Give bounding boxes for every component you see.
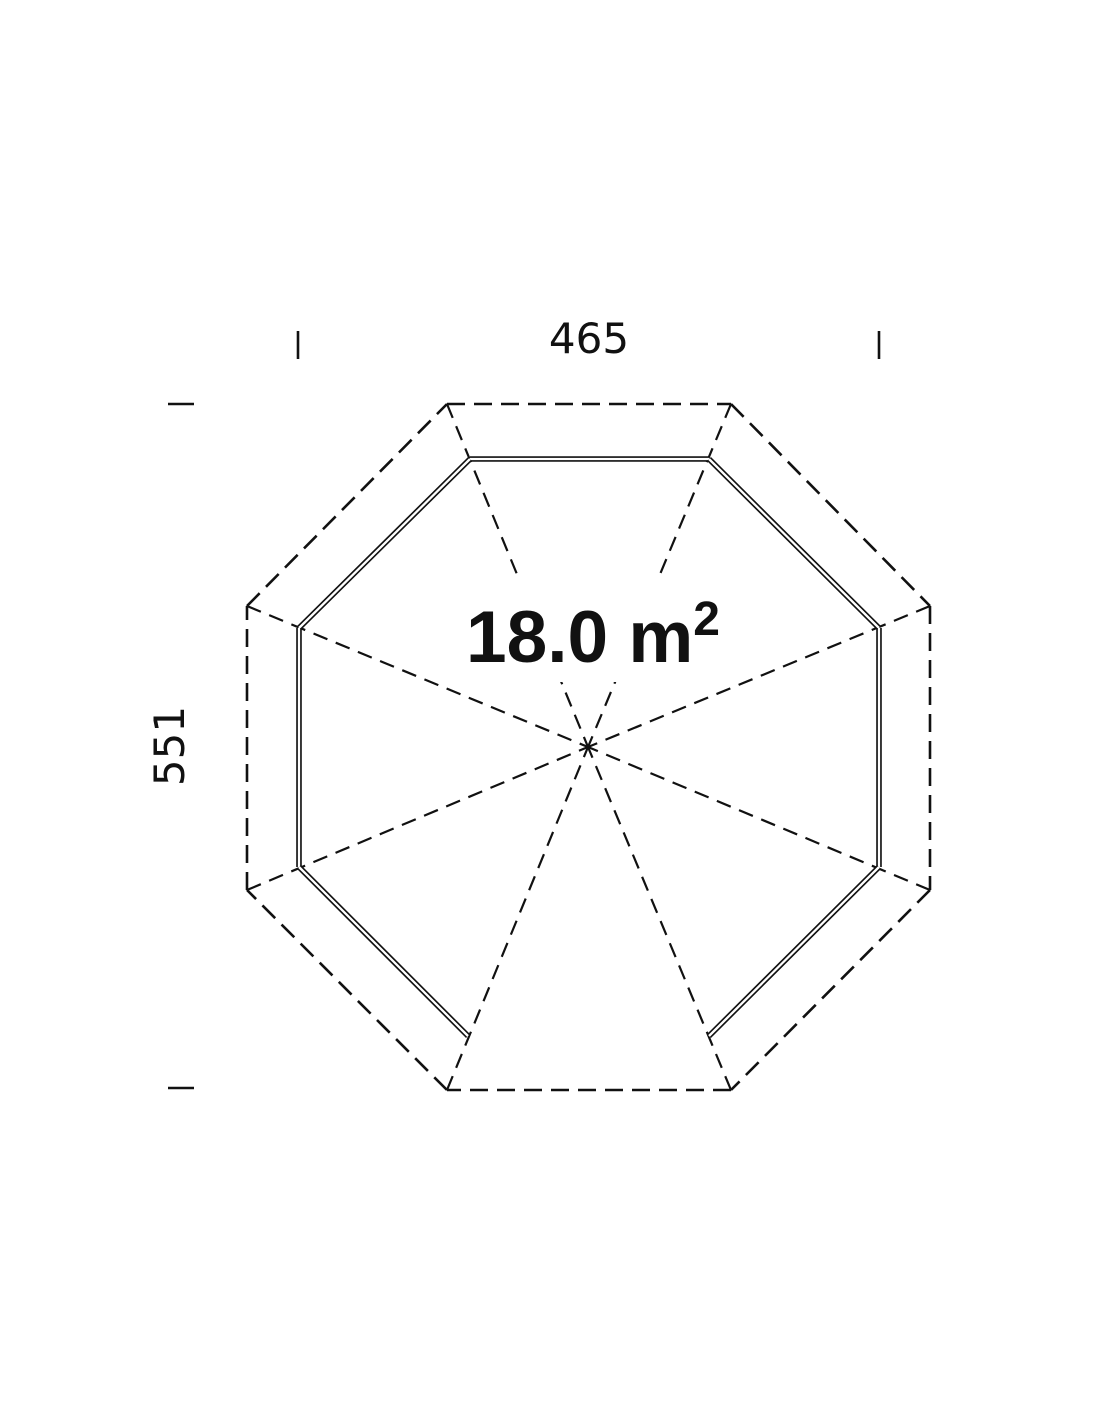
area-label-superscript: 2	[693, 593, 720, 646]
roof-edge-top-left	[247, 404, 447, 606]
wall-gap-line	[709, 867, 879, 1036]
roof-ridge-line	[447, 747, 588, 1090]
roof-ridge-line	[588, 747, 731, 1090]
roof-edge-bottom-left	[247, 890, 447, 1090]
gazebo-floor-plan-drawing: 465 551 18.0 m2	[0, 0, 1100, 1422]
width-dimension-label: 465	[549, 314, 629, 363]
roof-ridge-line	[447, 404, 588, 747]
roof-edge-bottom-right	[731, 890, 930, 1090]
wall-gap-line	[299, 459, 470, 628]
floor-plan-page: 465 551 18.0 m2	[0, 0, 1100, 1422]
area-label: 18.0 m2	[466, 593, 720, 678]
wall-bottom-left	[299, 867, 468, 1036]
roof-edge-top-right	[731, 404, 930, 606]
roof-ridges	[247, 404, 930, 1090]
area-label-value: 18.0 m	[466, 597, 693, 678]
wall-gap-line	[299, 867, 468, 1036]
roof-ridge-line	[588, 404, 731, 747]
height-dimension-label: 551	[145, 706, 194, 786]
wall-top-left	[299, 459, 470, 628]
wall-bottom-right	[709, 867, 879, 1036]
